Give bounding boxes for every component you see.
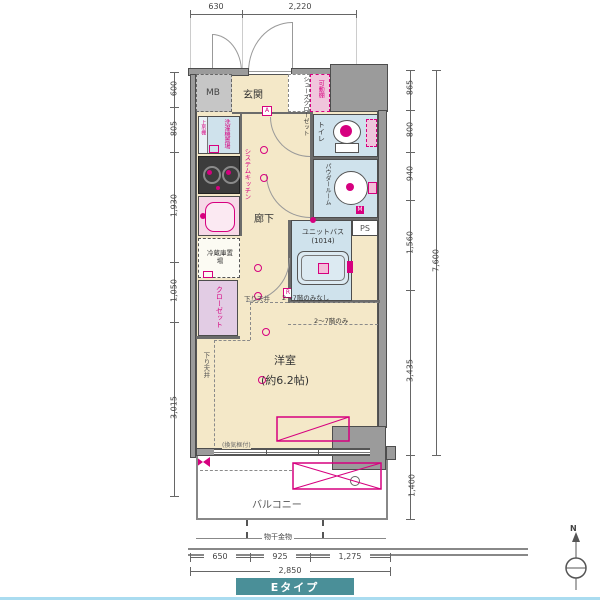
dim-top-0: 630 bbox=[200, 2, 232, 11]
dim-right-balcony: 1,400 bbox=[408, 466, 417, 506]
powder-room: パウダールーム M bbox=[313, 159, 378, 218]
upper-shelf-label: 上吊棚 bbox=[200, 120, 205, 135]
toilet-seat-icon bbox=[340, 125, 352, 137]
dim-tick bbox=[432, 70, 441, 71]
dim-top-1: 2,220 bbox=[280, 2, 320, 11]
outlet-icon bbox=[203, 271, 213, 278]
toilet-tank-icon bbox=[335, 143, 359, 153]
dim-right-1: 800 bbox=[406, 110, 415, 150]
closet-label: クローゼット bbox=[215, 286, 222, 328]
shoes-closet: シューズクローゼット bbox=[288, 74, 310, 112]
dim-tick bbox=[390, 553, 391, 562]
vent-note-label: (換気框付) bbox=[222, 440, 251, 449]
dim-tick bbox=[310, 553, 311, 562]
shower-icon bbox=[310, 217, 316, 223]
dim-extension-line bbox=[190, 18, 191, 68]
main-room-label: 洋室 bbox=[250, 352, 320, 368]
kitchen-sink bbox=[198, 196, 240, 236]
balcony-bottom-edge bbox=[196, 518, 388, 520]
balcony-left-edge bbox=[196, 456, 198, 520]
mb-door-leaf bbox=[212, 34, 213, 72]
dim-tick bbox=[390, 567, 391, 576]
floors-note-1: 2〜7階のみなし bbox=[282, 292, 329, 302]
compass: N bbox=[556, 524, 596, 594]
dim-bottom-2: 1,275 bbox=[330, 552, 370, 561]
pipe-space: PS bbox=[352, 220, 378, 236]
fridge-place: 冷蔵庫置場 bbox=[198, 238, 240, 278]
burner-icon bbox=[203, 166, 221, 184]
partition-entrance bbox=[232, 112, 312, 114]
shutter-valve-icon bbox=[196, 457, 210, 467]
drying-fixture-label: 物干金物 bbox=[262, 532, 294, 542]
system-kitchen-label: システムキッチン bbox=[243, 148, 250, 238]
dim-extension-line bbox=[242, 18, 243, 68]
left-wall bbox=[190, 74, 196, 458]
movable-shelf: 可動棚 bbox=[310, 74, 330, 112]
site-boundary-line bbox=[188, 548, 528, 550]
unit-bath-size-label: (1014) bbox=[300, 237, 346, 245]
washer-tap-icon bbox=[209, 145, 219, 153]
dim-left-2: 1,930 bbox=[170, 186, 179, 226]
dim-right-3: 1,560 bbox=[406, 223, 415, 263]
dim-tick bbox=[432, 455, 441, 456]
compass-n-label: N bbox=[570, 524, 577, 533]
dim-tick bbox=[170, 322, 179, 323]
dim-tick bbox=[170, 152, 179, 153]
unit-bath-label: ユニットバス bbox=[300, 227, 346, 237]
movable-shelf-label: 可動棚 bbox=[317, 80, 323, 98]
door-knob-icon bbox=[262, 328, 270, 336]
stove bbox=[198, 156, 240, 194]
dim-extension-line bbox=[356, 18, 357, 64]
stove-knob-icon bbox=[216, 186, 220, 190]
dim-left-4: 3,015 bbox=[170, 388, 179, 428]
window-pane-divider bbox=[266, 450, 267, 454]
mb-door-swing-arc bbox=[212, 34, 242, 72]
dim-left-1: 805 bbox=[170, 109, 179, 149]
balcony-dashed-line bbox=[200, 470, 292, 471]
shoes-closet-label: シューズクローゼット bbox=[292, 76, 308, 112]
basin-faucet-icon bbox=[368, 182, 377, 194]
corridor-label: 廊下 bbox=[254, 210, 274, 225]
bathtub-icon bbox=[297, 251, 349, 285]
basin-drain-icon bbox=[346, 183, 354, 191]
toilet-room: トイレ bbox=[313, 114, 378, 157]
dim-tick bbox=[250, 553, 251, 562]
pipe-space-label: PS bbox=[360, 224, 370, 233]
ceiling-dashed-line bbox=[214, 340, 250, 341]
door-knob-icon bbox=[254, 264, 262, 272]
stove-knob-icon bbox=[207, 170, 212, 175]
floors-note-2: 2〜7階のみ bbox=[314, 315, 348, 325]
washer-place: 上吊棚 洗濯機置場 bbox=[198, 116, 240, 154]
top-right-wall-block bbox=[330, 64, 388, 112]
floor-plan-canvas: MB 玄関 シューズクローゼット 可動棚 A 上吊棚 洗濯機置場 システムキッチ… bbox=[0, 0, 600, 600]
aircon-place-box bbox=[276, 416, 350, 442]
dim-bottom-total: 2,850 bbox=[270, 566, 310, 575]
balcony-label: バルコニー bbox=[252, 496, 302, 511]
entrance-door-leaf bbox=[292, 22, 293, 72]
bath-drain-icon bbox=[318, 263, 329, 274]
ceiling-dashed-line bbox=[214, 340, 215, 446]
compass-icon bbox=[556, 524, 596, 594]
partition-closet-bottom bbox=[196, 336, 240, 339]
dim-bottom-1: 925 bbox=[264, 552, 296, 561]
dim-tick bbox=[170, 496, 179, 497]
window-rail bbox=[214, 452, 370, 453]
meter-box: MB bbox=[196, 74, 232, 112]
dim-right-2: 940 bbox=[406, 154, 415, 194]
stove-knob-icon bbox=[226, 170, 231, 175]
balcony-right-edge bbox=[386, 460, 388, 520]
window-pane-divider bbox=[318, 450, 319, 454]
dim-right-0: 865 bbox=[406, 68, 415, 108]
powder-room-label: パウダールーム bbox=[316, 163, 330, 217]
fridge-place-label: 冷蔵庫置場 bbox=[204, 249, 236, 266]
upper-shelf-strip: 上吊棚 bbox=[199, 117, 208, 153]
entrance-sill-line bbox=[249, 71, 291, 72]
dim-line-top bbox=[190, 14, 357, 15]
drying-fixture-tick bbox=[246, 520, 248, 538]
dim-tick bbox=[190, 553, 191, 562]
door-knob-icon bbox=[260, 146, 268, 154]
bottom-right-wall-tab bbox=[386, 446, 396, 460]
main-window bbox=[214, 448, 370, 456]
entrance-door-swing-arc bbox=[248, 22, 292, 72]
outdoor-unit-box bbox=[292, 462, 382, 490]
bath-faucet-icon bbox=[347, 261, 353, 273]
dim-tick bbox=[406, 519, 415, 520]
main-room-size-label: (約6.2帖) bbox=[240, 372, 330, 388]
unit-bath: ユニットバス (1014) bbox=[291, 220, 352, 301]
dim-tick bbox=[406, 200, 415, 201]
faucet-icon bbox=[200, 213, 206, 219]
chip-m: M bbox=[356, 206, 364, 214]
sink-bowl-icon bbox=[205, 202, 235, 232]
dim-left-0: 600 bbox=[170, 69, 179, 109]
lowered-ceiling-top-label: 下り天井 bbox=[244, 293, 270, 303]
genkan-label: 玄関 bbox=[243, 86, 263, 101]
closet: クローゼット bbox=[198, 280, 238, 336]
toilet-shelf-icon bbox=[366, 119, 377, 147]
bottom-wall-left-piece bbox=[196, 448, 216, 456]
type-label: Eタイプ bbox=[271, 579, 320, 595]
meter-box-label: MB bbox=[206, 88, 220, 98]
dim-tick bbox=[170, 262, 179, 263]
dim-tick bbox=[406, 455, 415, 456]
burner-icon bbox=[222, 166, 240, 184]
dim-right-total: 7,600 bbox=[432, 241, 441, 281]
lowered-ceiling-side-label: 下り天井 bbox=[202, 352, 209, 378]
dim-right-4: 3,435 bbox=[406, 351, 415, 391]
type-label-box: Eタイプ bbox=[236, 578, 354, 595]
dim-tick bbox=[406, 290, 415, 291]
toilet-label: トイレ bbox=[317, 121, 324, 142]
dim-bottom-0: 650 bbox=[204, 552, 236, 561]
dim-tick bbox=[190, 567, 191, 576]
right-wall bbox=[378, 110, 387, 428]
dim-left-3: 1,050 bbox=[170, 271, 179, 311]
drying-fixture-tick bbox=[322, 520, 324, 538]
partition-kitchen-right bbox=[240, 114, 242, 236]
chip-a: A bbox=[262, 106, 272, 116]
door-knob-icon bbox=[260, 174, 268, 182]
ceiling-dashed-line bbox=[250, 302, 251, 340]
